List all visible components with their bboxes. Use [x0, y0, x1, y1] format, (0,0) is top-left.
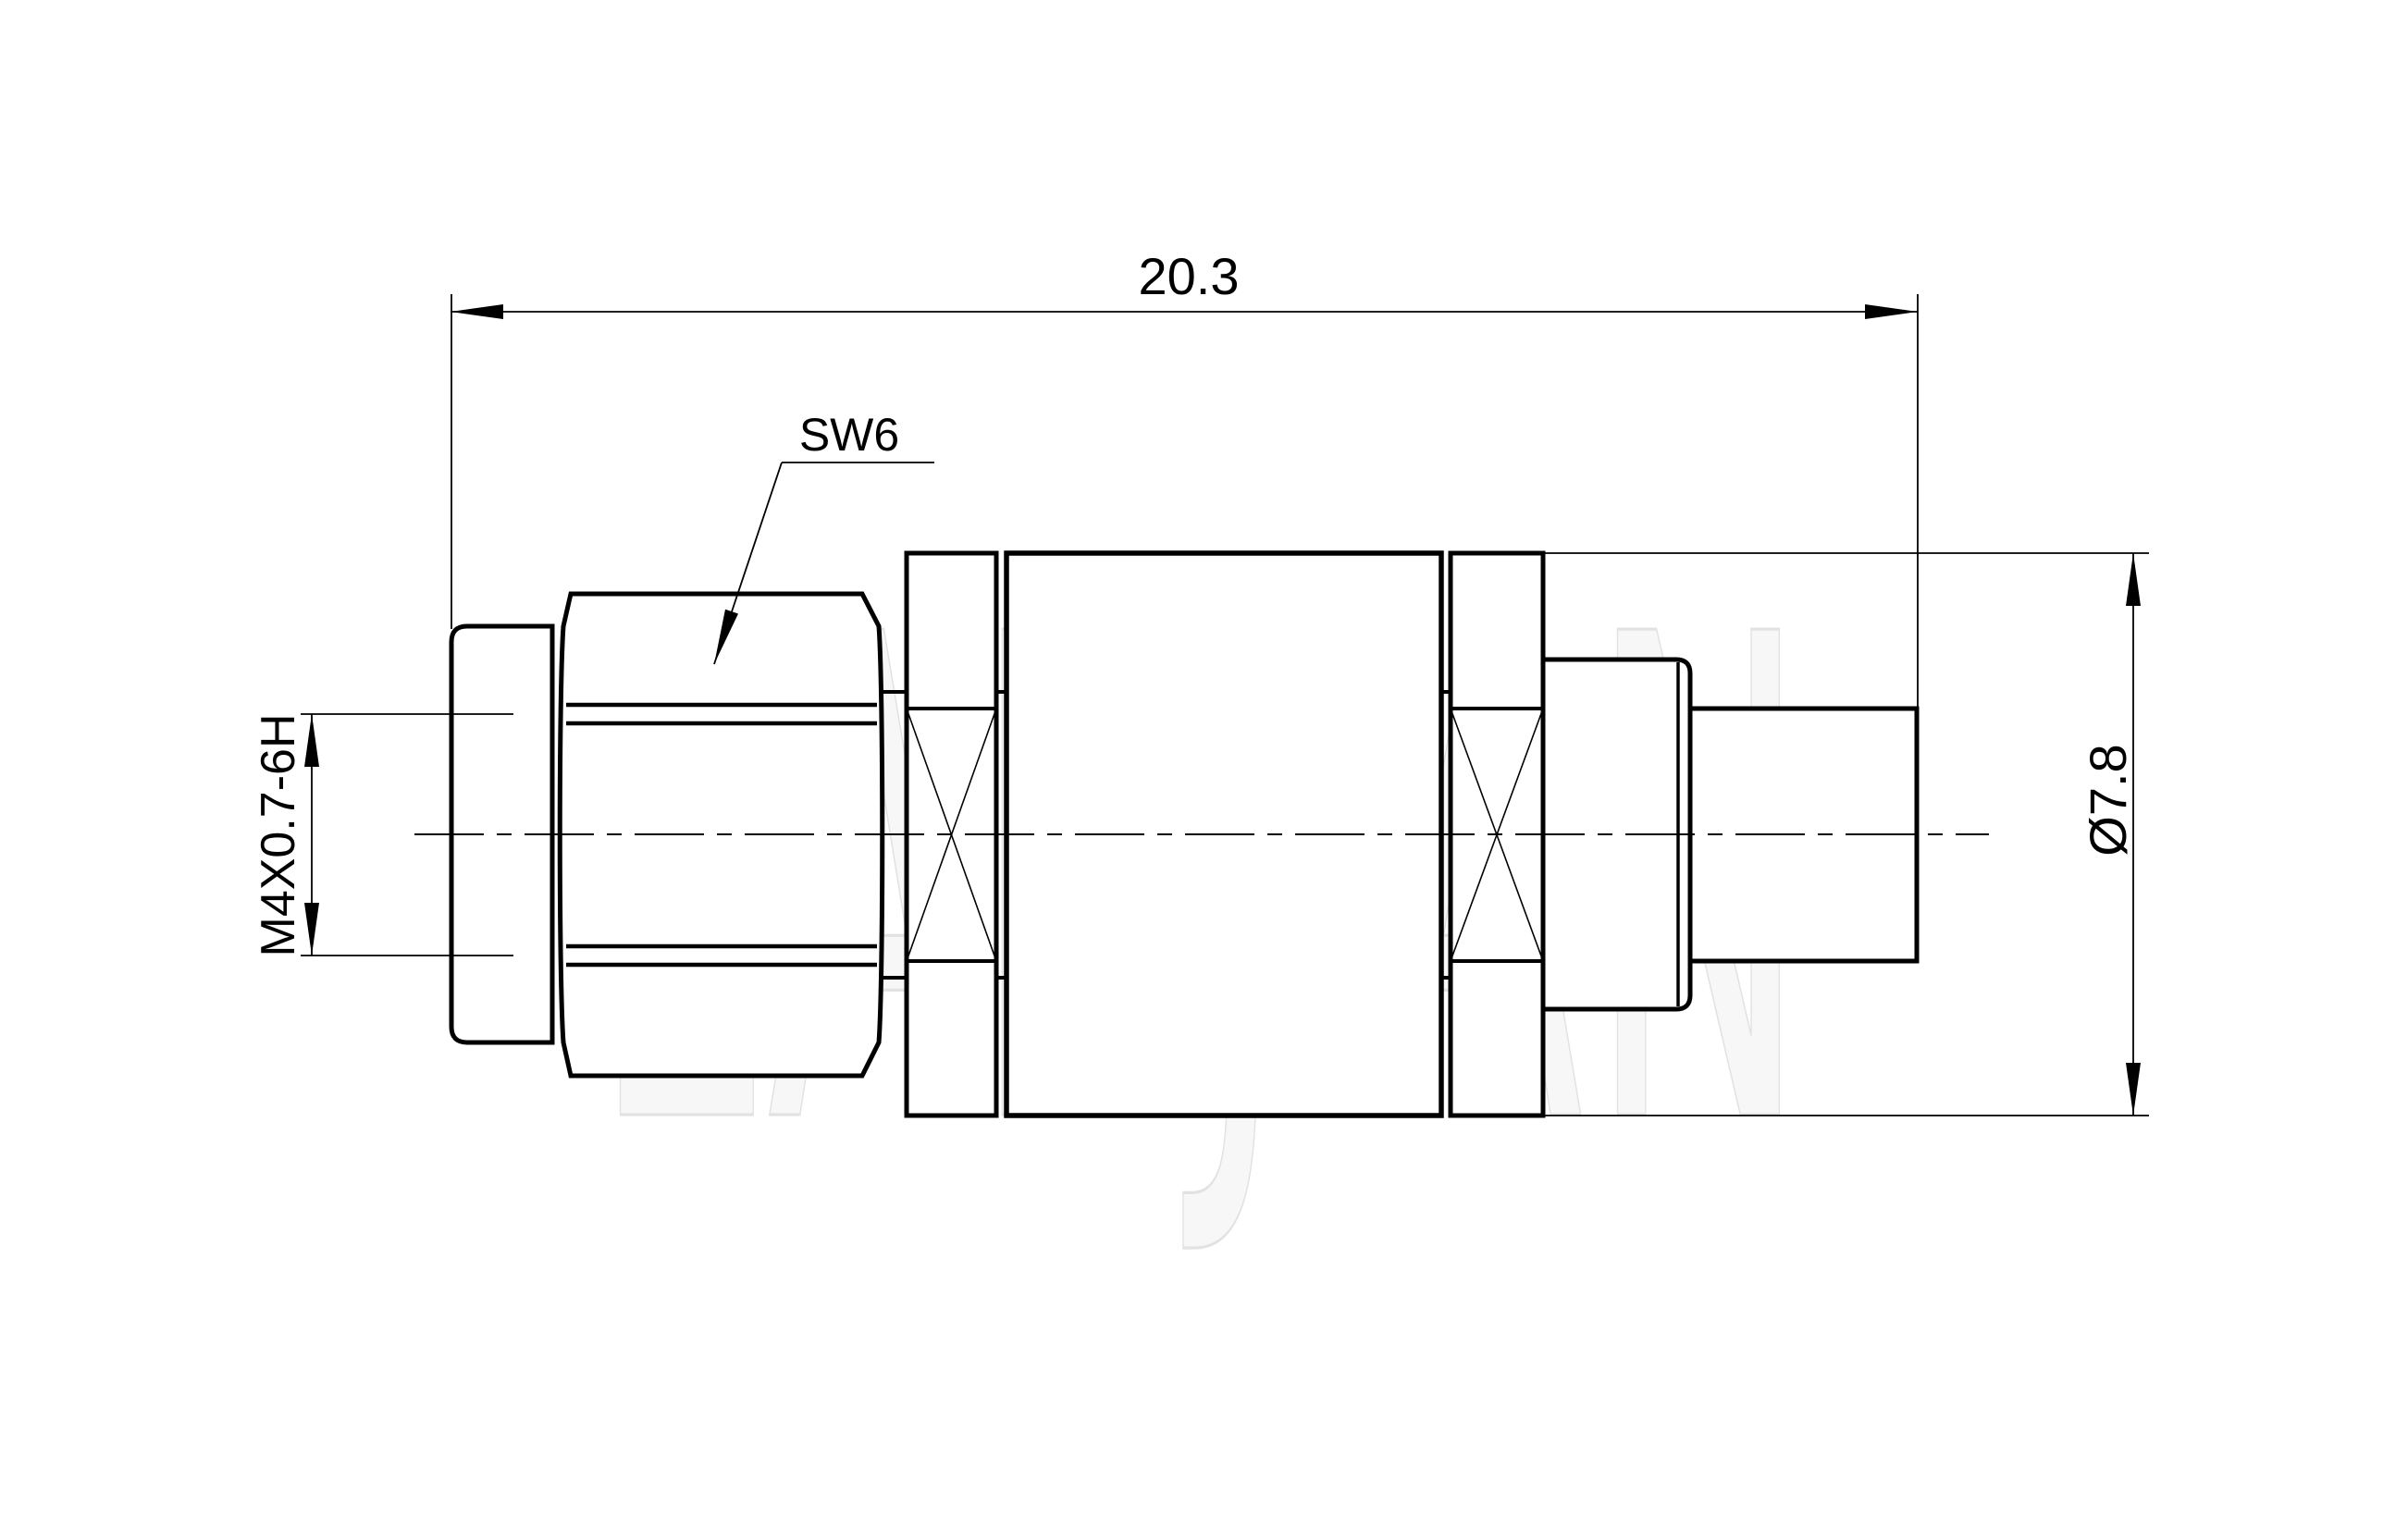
arrowhead-bottom — [304, 903, 319, 956]
arrowhead-top — [2126, 553, 2141, 606]
hex-size-label: SW6 — [799, 409, 899, 461]
thread-spec-value: M4X0.7-6H — [252, 714, 305, 957]
outer-diameter-value: Ø7.8 — [2079, 744, 2137, 856]
technical-drawing-canvas: LANJIAN — [0, 0, 2408, 1529]
rf-connector-drawing: LANJIAN — [0, 0, 2408, 1529]
arrowhead-bottom — [2126, 1063, 2141, 1116]
arrowhead-left — [451, 304, 503, 319]
overall-length-value: 20.3 — [1139, 247, 1240, 305]
arrowhead-top — [304, 714, 319, 767]
arrowhead-right — [1865, 304, 1918, 319]
